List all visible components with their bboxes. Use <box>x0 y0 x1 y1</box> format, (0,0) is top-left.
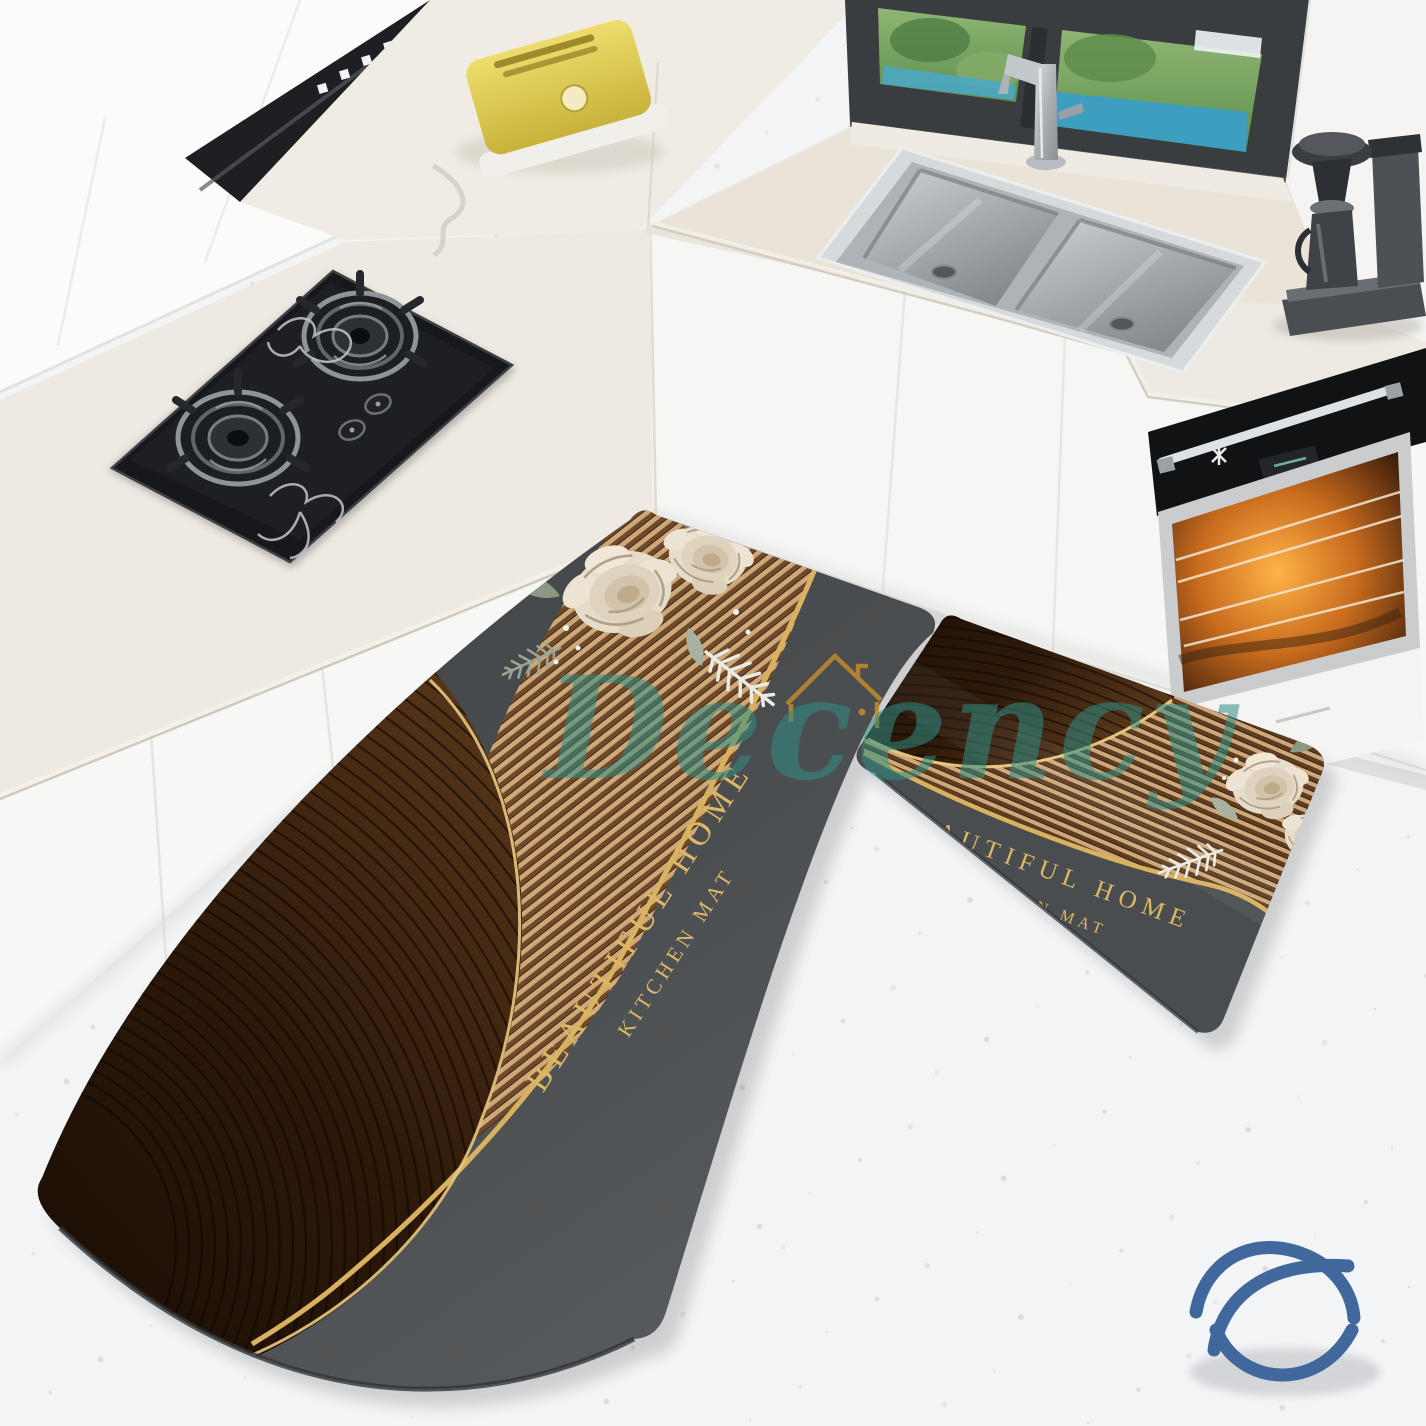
watermark-text: Decency <box>541 646 1240 812</box>
sink-drain-left <box>932 266 956 279</box>
coffee-carafe <box>1306 210 1358 290</box>
product-photo-kitchen-mats: BEAUTIFUL HOME KITCHEN MAT <box>0 0 1426 1426</box>
brand-watermark: Decency <box>541 646 1240 812</box>
sink-drain-right <box>1110 318 1134 331</box>
coffee-machine-tower <box>1372 146 1424 288</box>
kitchen-scene: BEAUTIFUL HOME KITCHEN MAT <box>0 0 1426 1426</box>
